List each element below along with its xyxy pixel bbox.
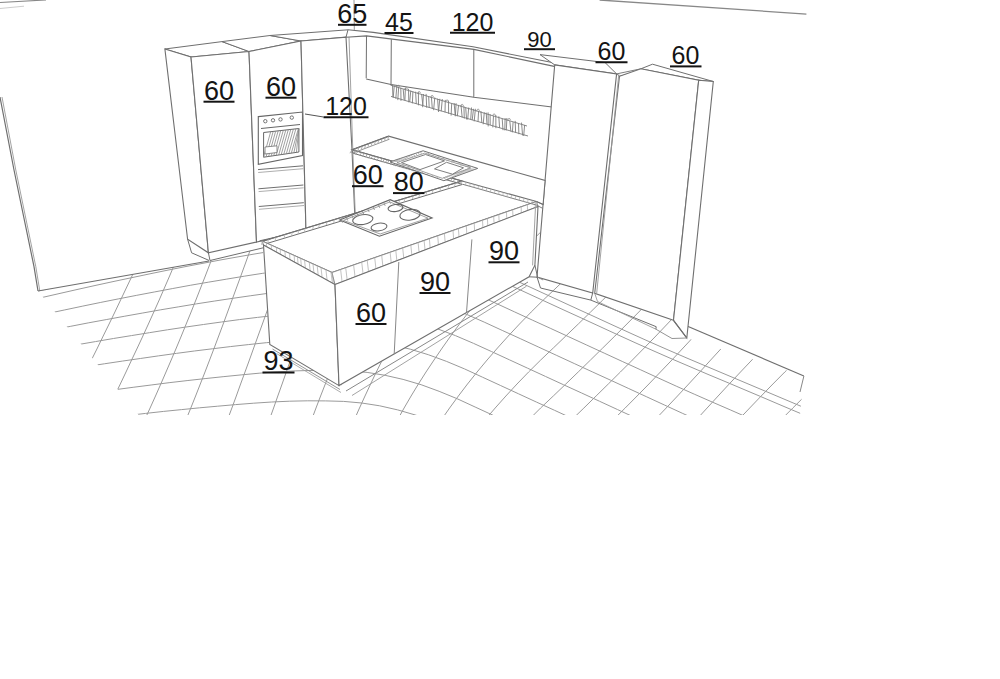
svg-text:60: 60 xyxy=(598,37,626,65)
svg-text:120: 120 xyxy=(452,8,494,36)
svg-text:120: 120 xyxy=(325,92,367,120)
svg-text:45: 45 xyxy=(385,8,413,36)
svg-text:60: 60 xyxy=(672,41,700,69)
